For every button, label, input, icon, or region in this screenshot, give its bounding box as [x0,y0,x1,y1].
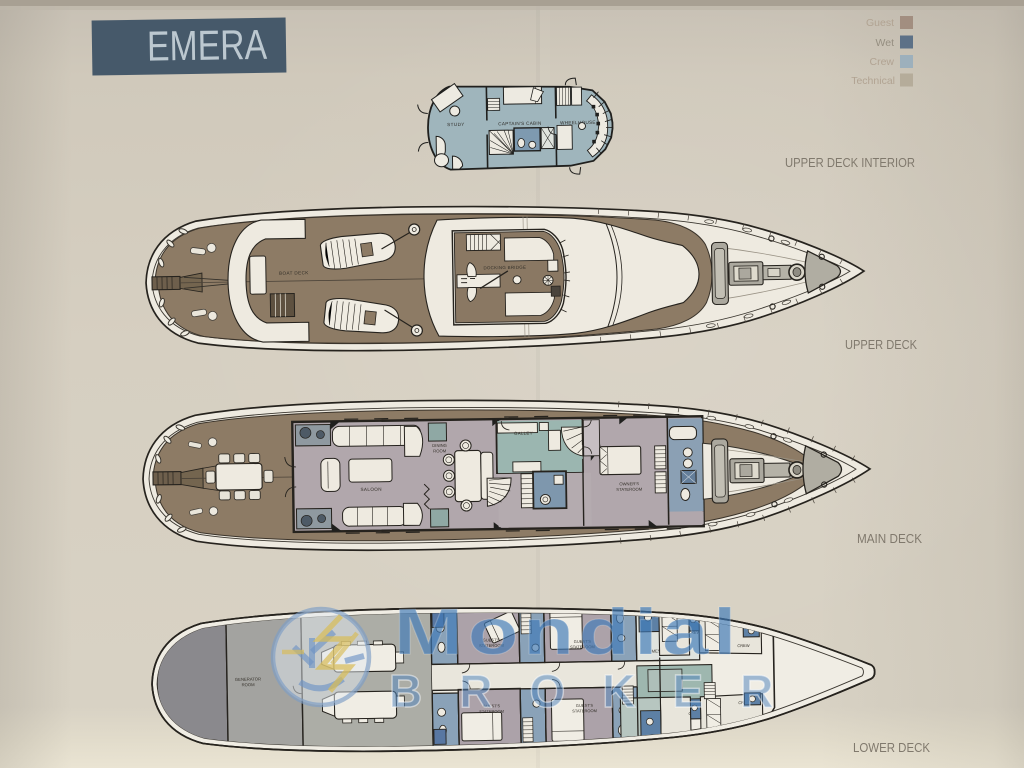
svg-text:ROOM: ROOM [433,448,447,453]
svg-text:DINING: DINING [432,443,447,448]
svg-text:UPPER DECK INTERIOR: UPPER DECK INTERIOR [785,155,915,170]
svg-text:Crew: Crew [869,56,894,68]
svg-text:STUDY: STUDY [447,122,465,127]
svg-text:GALLEY: GALLEY [514,431,533,436]
svg-text:BOAT DECK: BOAT DECK [279,270,309,276]
svg-text:ROOM: ROOM [242,682,256,687]
svg-text:Mondial: Mondial [394,595,741,668]
svg-text:UPPER DECK: UPPER DECK [845,337,917,352]
svg-text:DOCKING BRIDGE: DOCKING BRIDGE [483,265,526,271]
svg-text:GENERATOR: GENERATOR [235,676,261,681]
svg-text:EMERA: EMERA [147,21,268,70]
svg-text:BROKER: BROKER [389,665,810,717]
svg-text:STATEROOM: STATEROOM [616,487,642,492]
svg-text:OWNER'S: OWNER'S [619,481,639,486]
svg-text:CAPTAIN'S CABIN: CAPTAIN'S CABIN [498,121,541,127]
svg-text:Guest: Guest [866,17,894,29]
svg-text:SALOON: SALOON [360,487,382,492]
svg-text:WHEELHOUSE: WHEELHOUSE [560,120,596,126]
svg-text:LOWER DECK: LOWER DECK [853,740,930,755]
svg-text:Technical: Technical [851,75,895,87]
svg-text:MAIN DECK: MAIN DECK [857,531,922,546]
svg-text:Wet: Wet [876,37,895,49]
